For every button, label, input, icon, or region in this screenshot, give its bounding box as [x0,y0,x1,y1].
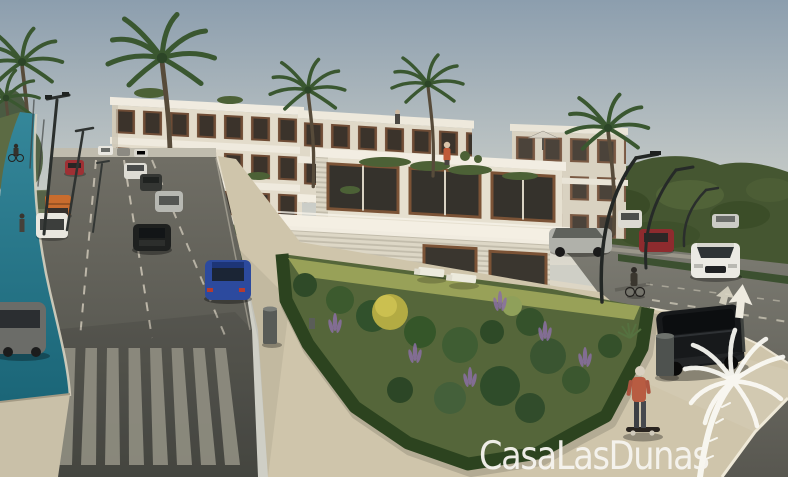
render-image: CasaLasDunas [0,0,788,477]
car-white-sedan-left [36,213,68,241]
car-gray-bottom-left [0,302,50,361]
terrace-person [444,142,451,165]
car-blue-hatchback [204,260,252,304]
roof-person [395,110,400,124]
car-van-right [618,210,642,228]
bike-lane-pedestrian [20,214,25,233]
car-silver-left [155,191,183,212]
car-black-sedan [132,224,172,255]
car-audi-white [690,243,742,282]
car-silver-distant [712,214,739,228]
sidewalk-corner-left [0,394,70,477]
car-dark-left [140,174,162,191]
watermark-brand-text: CasaLasDunas [479,434,709,477]
distant-pavement [50,148,216,157]
